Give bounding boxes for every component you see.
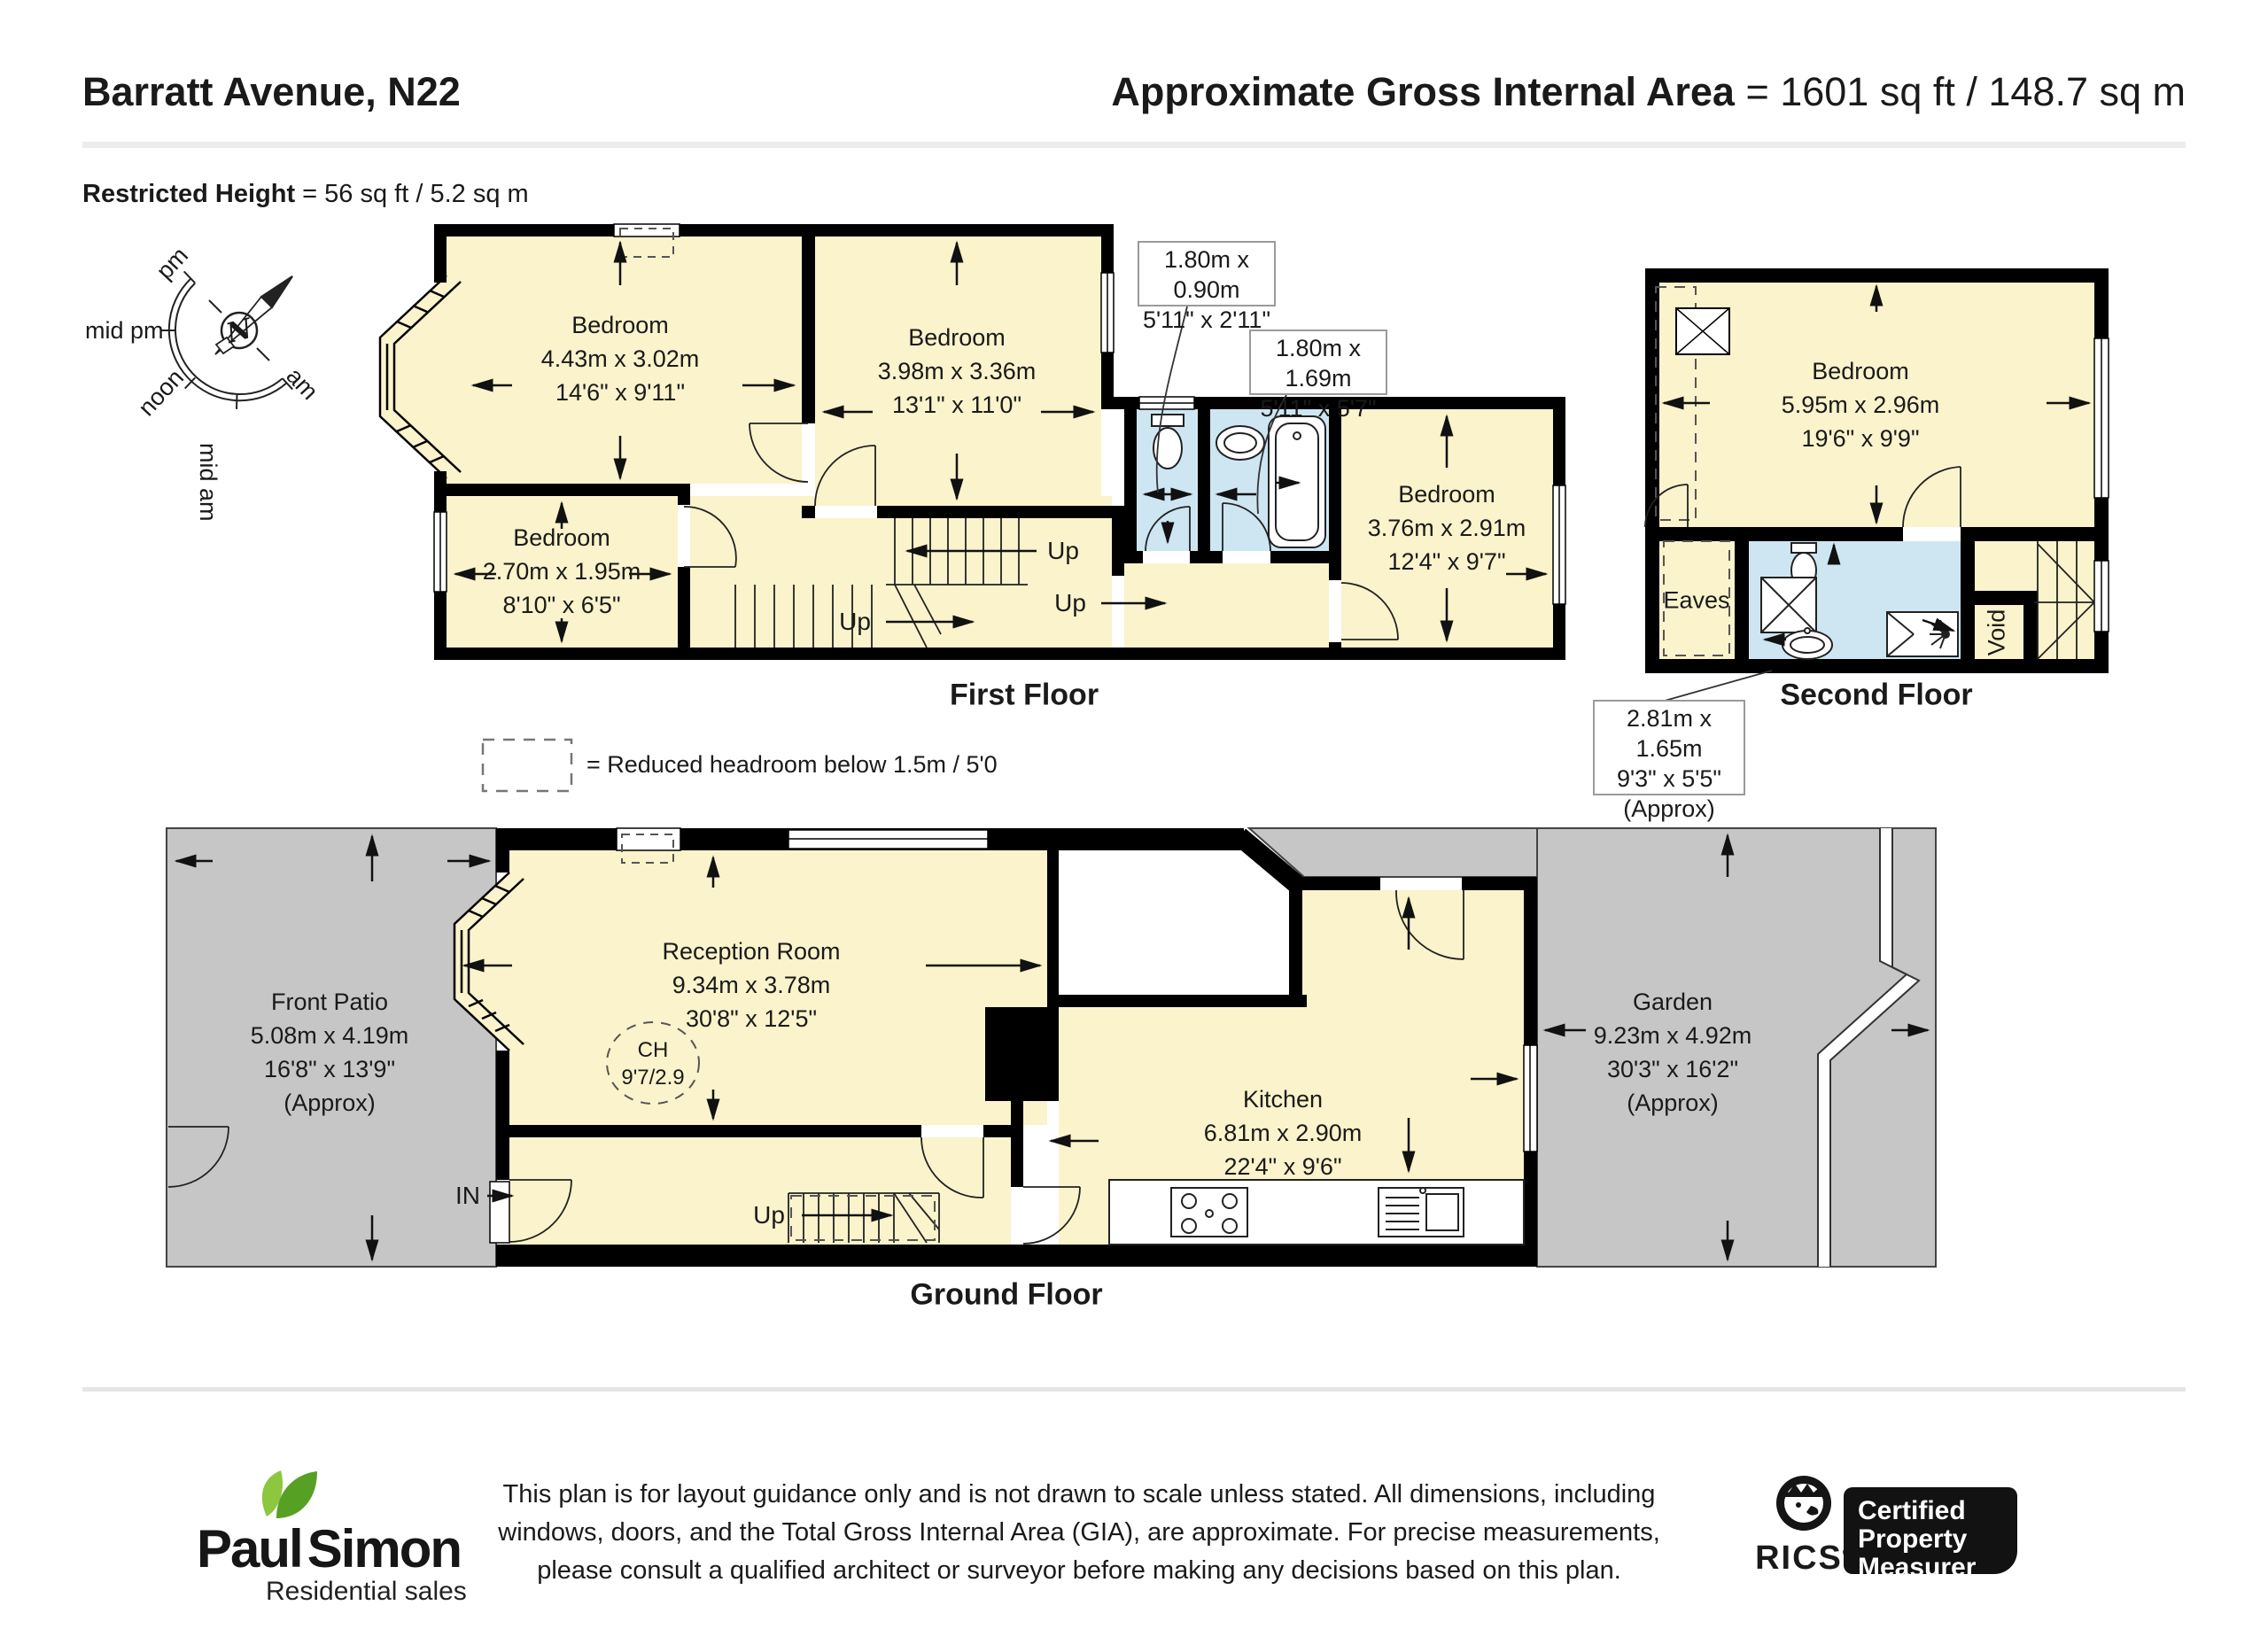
compass-label-mid-am: mid am xyxy=(194,443,221,522)
gia-value: = 1601 sq ft / 148.7 sq m xyxy=(1735,69,2186,114)
kitchen-counter xyxy=(1109,1180,1524,1245)
eaves-label: Eaves xyxy=(1663,587,1729,615)
compass-label-mid-pm: mid pm xyxy=(85,317,164,345)
room-label-kitchen: Kitchen 6.81m x 2.90m 22'4" x 9'6" xyxy=(1204,1082,1363,1183)
room-label-front-patio: Front Patio 5.08m x 4.19m 16'8" x 13'9" … xyxy=(251,985,409,1120)
room-label-bedroom-front: Bedroom 4.43m x 3.02m 14'6" x 9'11" xyxy=(541,308,700,409)
up-label-2: Up xyxy=(1054,589,1086,617)
room-label-bedroom-small: Bedroom 2.70m x 1.95m 8'10" x 6'5" xyxy=(483,521,641,622)
property-address: Barratt Avenue, N22 xyxy=(82,69,461,115)
rics-lion-icon xyxy=(1776,1476,1831,1531)
footer-divider xyxy=(82,1387,2186,1392)
header-divider xyxy=(82,142,2186,148)
ceiling-height-label: CH 9'7/2.9 xyxy=(621,1036,684,1091)
caption-first-floor: First Floor xyxy=(950,679,1099,713)
callout-wc: 1.80m x 0.90m 5'11" x 2'11" xyxy=(1138,241,1276,306)
room-label-garden: Garden 9.23m x 4.92m 30'3" x 16'2" (Appr… xyxy=(1594,985,1752,1120)
caption-second-floor: Second Floor xyxy=(1780,679,1972,713)
rics-wordmark: RICS® xyxy=(1755,1540,1854,1578)
plan-disclaimer: This plan is for layout guidance only an… xyxy=(485,1476,1673,1590)
up-label-ground: Up xyxy=(753,1201,785,1229)
restricted-height: Restricted Height = 56 sq ft / 5.2 sq m xyxy=(82,180,529,209)
room-label-reception: Reception Room 9.34m x 3.78m 30'8" x 12'… xyxy=(662,935,840,1035)
up-label-3: Up xyxy=(839,608,871,636)
floorplan-canvas xyxy=(0,0,2268,1652)
floorplan-page: Barratt Avenue, N22 Approximate Gross In… xyxy=(0,0,2268,1652)
room-label-bedroom-rear: Bedroom 3.76m x 2.91m 12'4" x 9'7" xyxy=(1368,477,1526,578)
restricted-label: Restricted Height xyxy=(82,180,295,208)
gross-internal-area: Approximate Gross Internal Area = 1601 s… xyxy=(1111,69,2186,115)
paulsimon-tagline: Residential sales xyxy=(266,1577,408,1607)
caption-ground-floor: Ground Floor xyxy=(910,1278,1102,1313)
reduced-headroom-symbol xyxy=(483,740,571,791)
restricted-value: = 56 sq ft / 5.2 sq m xyxy=(295,180,529,208)
second-floor-plan xyxy=(1645,268,2109,702)
paulsimon-logo: PaulSimon xyxy=(197,1518,461,1579)
gia-label: Approximate Gross Internal Area xyxy=(1111,69,1735,114)
room-label-bedroom-middle: Bedroom 3.98m x 3.36m 13'1" x 11'0" xyxy=(878,321,1037,422)
legend-reduced-headroom: = Reduced headroom below 1.5m / 5'0 xyxy=(586,751,998,779)
room-label-bedroom-second: Bedroom 5.95m x 2.96m 19'6" x 9'9" xyxy=(1782,354,1940,455)
paulsimon-leaves-icon xyxy=(262,1470,317,1518)
certified-property-measurer-badge: Certified Property Measurer xyxy=(1844,1487,2017,1574)
callout-eaves-bathroom: 2.81m x 1.65m 9'3" x 5'5" (Approx) xyxy=(1593,700,1745,795)
entrance-in-label: IN xyxy=(455,1182,480,1210)
void-label: Void xyxy=(1984,609,2011,656)
callout-bathroom: 1.80m x 1.69m 5'11" x 5'7" xyxy=(1249,330,1387,395)
up-label-1: Up xyxy=(1047,537,1079,565)
